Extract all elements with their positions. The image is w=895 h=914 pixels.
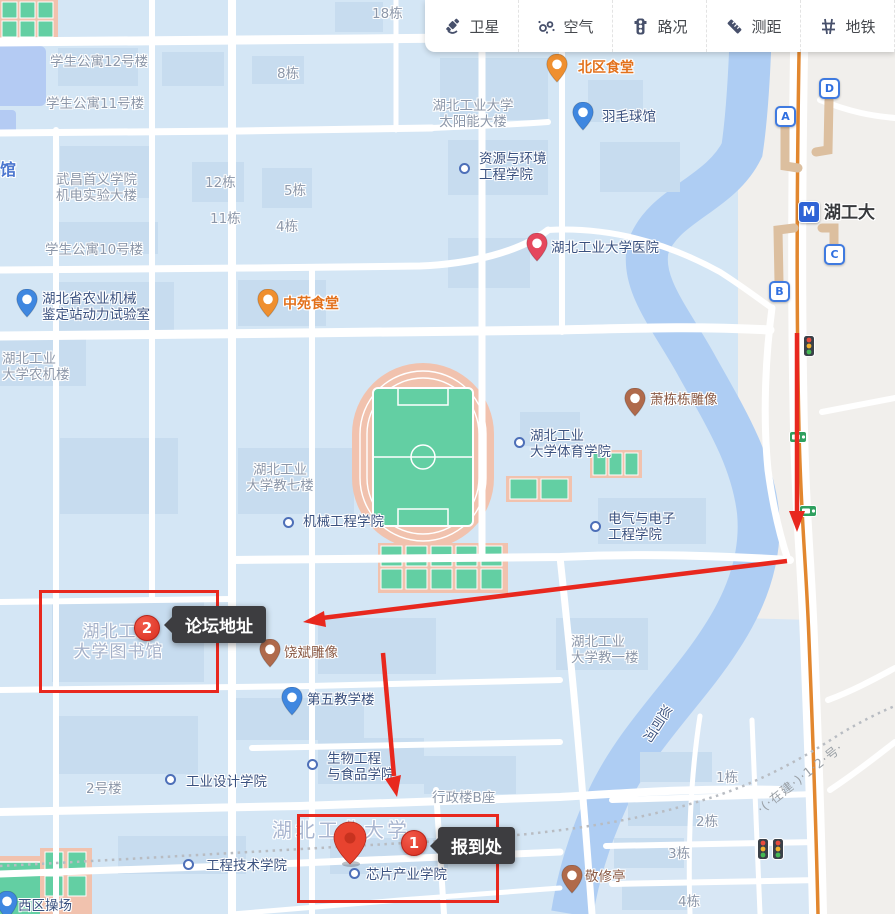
toolbar-item-label: 地铁 xyxy=(845,16,875,37)
checkin-tooltip: 报到处 xyxy=(438,827,515,864)
satellite-icon xyxy=(443,17,462,36)
ruler-icon xyxy=(725,17,744,36)
annotation-layer xyxy=(0,0,895,914)
checkin-number-badge: 1 xyxy=(401,830,427,856)
toolbar-item-traffic[interactable]: 路况 xyxy=(612,0,706,52)
forum-number-badge: 2 xyxy=(134,615,160,641)
toolbar-item-label: 卫星 xyxy=(469,16,499,37)
metro-lines-icon xyxy=(819,17,838,36)
toolbar-item-measure[interactable]: 测距 xyxy=(706,0,800,52)
checkin-pin xyxy=(334,822,366,867)
forum-tooltip: 论坛地址 xyxy=(172,606,266,643)
toolbar-item-label: 路况 xyxy=(657,16,687,37)
arrow-to-forum xyxy=(322,561,787,618)
toolbar-item-label: 测距 xyxy=(751,16,781,37)
air-quality-icon xyxy=(537,17,556,36)
toolbar-item-satellite[interactable]: 卫星 xyxy=(425,0,518,52)
traffic-light-icon xyxy=(631,17,650,36)
toolbar-item-air[interactable]: 空气 xyxy=(518,0,612,52)
map-toolbar: 卫星空气路况测距地铁 xyxy=(425,0,895,52)
toolbar-item-label: 空气 xyxy=(563,16,593,37)
toolbar-item-metro[interactable]: 地铁 xyxy=(800,0,895,52)
map-viewport[interactable]: 18栋学生公寓12号楼8栋北区食堂学生公寓11号楼湖北工业大学 太阳能大楼羽毛球… xyxy=(0,0,895,914)
arrow-to-checkin xyxy=(383,653,394,776)
